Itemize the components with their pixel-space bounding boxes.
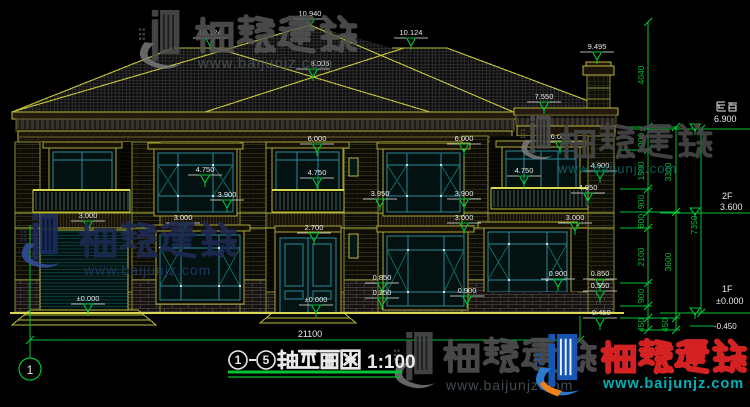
svg-text:4040: 4040 — [636, 65, 646, 84]
svg-text:-0.450: -0.450 — [589, 308, 610, 317]
svg-text:0.550: 0.550 — [591, 281, 610, 290]
svg-text:3.000: 3.000 — [174, 213, 193, 222]
svg-text:4.750: 4.750 — [515, 166, 534, 175]
svg-text:0.850: 0.850 — [591, 269, 610, 278]
svg-text:3600: 3600 — [663, 252, 673, 271]
svg-text:www.baijunjz.com: www.baijunjz.com — [197, 55, 333, 72]
svg-text:0.900: 0.900 — [549, 269, 568, 278]
svg-text:9.495: 9.495 — [588, 42, 607, 51]
svg-text:-0.450: -0.450 — [714, 322, 737, 331]
svg-text:0.250: 0.250 — [373, 288, 392, 297]
svg-text:4.750: 4.750 — [308, 168, 327, 177]
svg-text:www.baijunjz.com: www.baijunjz.com — [557, 161, 677, 176]
svg-text:7.550: 7.550 — [535, 92, 554, 101]
svg-text:1: 1 — [235, 353, 242, 367]
svg-text:2F: 2F — [722, 191, 733, 201]
svg-text:600: 600 — [636, 214, 646, 228]
svg-text:6.000: 6.000 — [455, 134, 474, 143]
svg-text:2100: 2100 — [636, 247, 646, 266]
svg-text:21100: 21100 — [298, 329, 322, 339]
svg-text:www.baijunjz.com: www.baijunjz.com — [602, 376, 744, 392]
svg-text:3.950: 3.950 — [371, 189, 390, 198]
svg-text:900: 900 — [636, 289, 646, 303]
svg-text:1:100: 1:100 — [367, 352, 416, 373]
svg-text:±0.000: ±0.000 — [305, 295, 328, 304]
svg-text:3.900: 3.900 — [218, 190, 237, 199]
svg-text:6.900: 6.900 — [714, 114, 737, 124]
svg-text:2.700: 2.700 — [305, 223, 324, 232]
svg-text:±0.000: ±0.000 — [716, 296, 743, 306]
svg-text:6.000: 6.000 — [308, 134, 327, 143]
svg-text:450: 450 — [636, 318, 646, 332]
svg-text:3.000: 3.000 — [566, 213, 585, 222]
svg-text:3.000: 3.000 — [455, 213, 474, 222]
svg-text:450: 450 — [660, 318, 670, 332]
svg-text:5: 5 — [263, 353, 270, 367]
svg-text:3.900: 3.900 — [455, 189, 474, 198]
svg-text:1F: 1F — [722, 284, 733, 294]
svg-text:www.baijunjz.com: www.baijunjz.com — [83, 262, 211, 278]
svg-text:4.050: 4.050 — [579, 183, 598, 192]
svg-text:4.750: 4.750 — [196, 165, 215, 174]
svg-text:3.600: 3.600 — [720, 202, 743, 212]
svg-text:7350: 7350 — [689, 215, 699, 234]
svg-text:0.850: 0.850 — [373, 273, 392, 282]
svg-text:1: 1 — [27, 363, 34, 377]
svg-text:900: 900 — [636, 195, 646, 209]
svg-text:10.124: 10.124 — [400, 28, 423, 37]
svg-text:0.900: 0.900 — [458, 286, 477, 295]
svg-text:3.000: 3.000 — [79, 211, 98, 220]
svg-text:±0.000: ±0.000 — [77, 294, 100, 303]
